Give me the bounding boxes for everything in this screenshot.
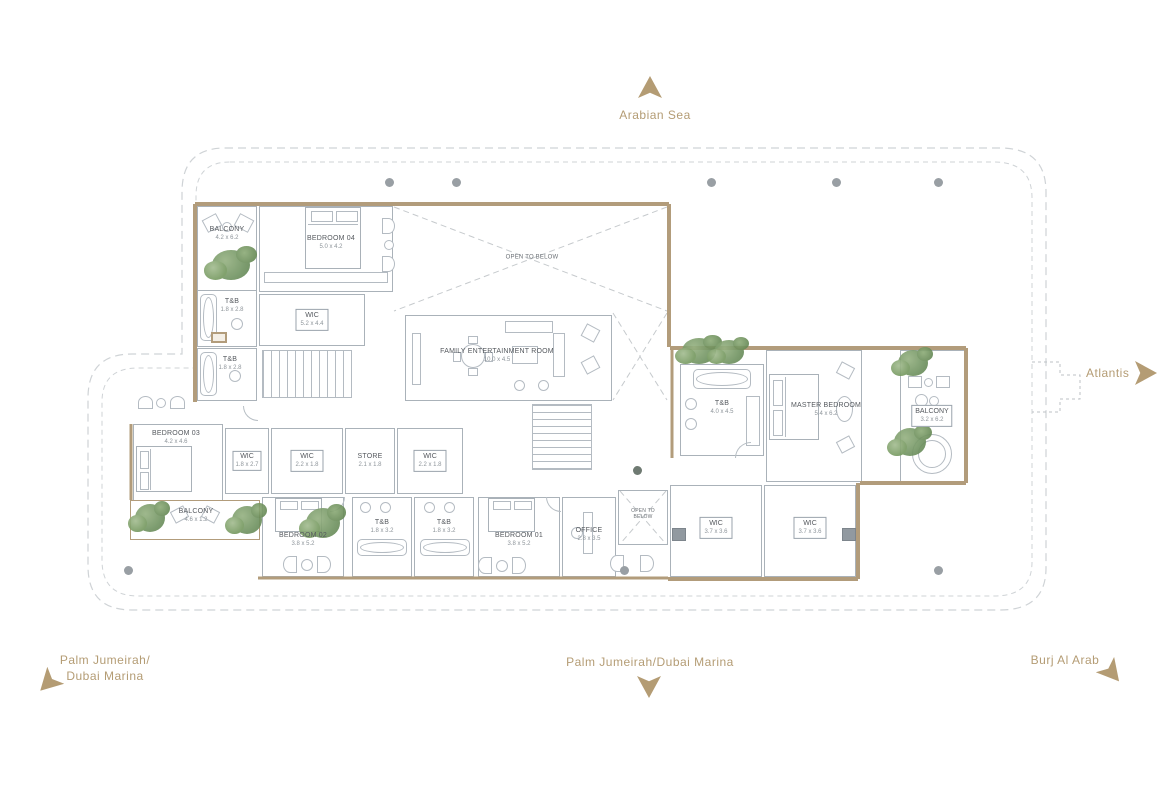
room-label: WIC bbox=[709, 520, 723, 527]
room-label: BALCONY bbox=[210, 226, 245, 233]
side-table-icon bbox=[924, 378, 933, 387]
room-label-family-entertainment: FAMILY ENTERTAINMENT ROOM 10.0 x 4.5 bbox=[440, 348, 554, 364]
room-dims: 3.7 x 3.6 bbox=[704, 529, 727, 537]
compass-label-north: Arabian Sea bbox=[610, 108, 700, 122]
room-label-tb-bedroom-01: T&B 1.8 x 3.2 bbox=[432, 519, 455, 535]
dining-chair-icon bbox=[468, 368, 478, 376]
compass-label-southwest: Palm Jumeirah/ Dubai Marina bbox=[40, 653, 170, 684]
dining-chair-icon bbox=[468, 336, 478, 344]
room-label-wic-bedroom-01: WIC 2.2 x 1.8 bbox=[413, 450, 446, 472]
stool-icon bbox=[514, 380, 525, 391]
vanity-icon bbox=[746, 396, 760, 446]
room-dims: 3.7 x 3.6 bbox=[798, 529, 821, 537]
room-label-master-tb: T&B 4.0 x 4.5 bbox=[710, 400, 733, 416]
bed-icon bbox=[488, 498, 535, 532]
room-dims: 3.8 x 5.2 bbox=[279, 541, 327, 549]
east-arrow-icon bbox=[1135, 361, 1157, 385]
toilet-icon bbox=[685, 398, 697, 410]
room-label: BEDROOM 01 bbox=[495, 532, 543, 539]
column-dot bbox=[633, 466, 642, 475]
room-dims: 1.8 x 2.7 bbox=[235, 462, 258, 470]
sofa-icon bbox=[553, 333, 565, 377]
room-label-balcony-right: BALCONY 3.2 x 6.2 bbox=[911, 405, 952, 427]
room-label-wic-master-right: WIC 3.7 x 3.6 bbox=[793, 517, 826, 539]
room-label-wic-bedroom-03: WIC 1.8 x 2.7 bbox=[232, 451, 261, 471]
room-label-wic-master-left: WIC 3.7 x 3.6 bbox=[699, 517, 732, 539]
plant-icon bbox=[894, 428, 926, 456]
room-dims: 3.2 x 6.2 bbox=[915, 417, 948, 425]
room-label-bedroom-02: BEDROOM 02 3.8 x 5.2 bbox=[279, 532, 327, 548]
room-label: BEDROOM 03 bbox=[152, 430, 200, 437]
chair-icon bbox=[640, 555, 654, 572]
room-label: WIC bbox=[240, 453, 254, 460]
plant-icon bbox=[135, 504, 165, 532]
compass-label-east: Atlantis bbox=[1086, 366, 1129, 380]
room-dims: 2.2 x 1.8 bbox=[295, 462, 318, 470]
room-label: OPEN TO BELOW bbox=[631, 508, 655, 520]
room-label: WIC bbox=[423, 453, 437, 460]
room-dims: 10.0 x 4.5 bbox=[440, 357, 554, 365]
room-label: BEDROOM 04 bbox=[307, 235, 355, 242]
room-label-office: OFFICE 2.8 x 3.5 bbox=[576, 527, 603, 543]
plant-icon bbox=[714, 340, 744, 364]
bathtub-icon bbox=[420, 539, 470, 556]
room-dims: 4.2 x 4.6 bbox=[152, 439, 200, 447]
room-dims: 5.4 x 6.2 bbox=[791, 411, 861, 419]
room-label: STORE bbox=[358, 453, 383, 460]
sink-icon bbox=[444, 502, 455, 513]
chair-icon bbox=[138, 396, 153, 409]
column-dot bbox=[832, 178, 841, 187]
compass-label-southeast: Burj Al Arab bbox=[1020, 653, 1110, 667]
door-threshold-marker bbox=[211, 332, 227, 343]
room-label-tb-lower: T&B 1.8 x 2.8 bbox=[218, 356, 241, 372]
room-label: OPEN TO BELOW bbox=[506, 254, 559, 260]
side-table-icon bbox=[156, 398, 166, 408]
room-label-wic-bedroom-04: WIC 5.2 x 4.4 bbox=[295, 309, 328, 331]
dresser-icon bbox=[264, 272, 388, 283]
room-label: T&B bbox=[437, 519, 451, 526]
room-label: BEDROOM 02 bbox=[279, 532, 327, 539]
chair-icon bbox=[512, 557, 526, 574]
room-label-open-to-below-small: OPEN TO BELOW bbox=[625, 508, 661, 521]
room-label: FAMILY ENTERTAINMENT ROOM bbox=[440, 348, 554, 355]
room-dims: 2.1 x 1.8 bbox=[358, 462, 383, 470]
bathtub-icon bbox=[200, 352, 217, 396]
room-dims: 5.2 x 4.4 bbox=[300, 321, 323, 329]
room-label-store: STORE 2.1 x 1.8 bbox=[358, 453, 383, 469]
room-label-tb-upper: T&B 1.8 x 2.8 bbox=[220, 298, 243, 314]
room-dims: 4.6 x 1.2 bbox=[179, 517, 214, 525]
column-dot bbox=[124, 566, 133, 575]
room-dims: 1.8 x 2.8 bbox=[220, 307, 243, 315]
staircase-upper-left bbox=[262, 350, 352, 398]
north-arrow-icon bbox=[638, 76, 662, 98]
room-label-wic-middle: WIC 2.2 x 1.8 bbox=[290, 450, 323, 472]
chair-icon bbox=[170, 396, 185, 409]
room-label: MASTER BEDROOM bbox=[791, 402, 861, 409]
chair-icon bbox=[478, 557, 492, 574]
chair-icon bbox=[283, 556, 297, 573]
compass-label-line: Palm Jumeirah/ bbox=[40, 653, 170, 669]
room-dims: 1.8 x 3.2 bbox=[370, 528, 393, 536]
chair-icon bbox=[382, 218, 395, 234]
room-label: T&B bbox=[715, 400, 729, 407]
room-label: BALCONY bbox=[915, 408, 948, 415]
room-label: WIC bbox=[803, 520, 817, 527]
room-label-balcony-bottom-left: BALCONY 4.6 x 1.2 bbox=[179, 508, 214, 524]
room-label: WIC bbox=[300, 453, 314, 460]
toilet-icon bbox=[231, 318, 243, 330]
toilet-icon bbox=[360, 502, 371, 513]
room-dims: 4.2 x 6.2 bbox=[210, 235, 245, 243]
ac-unit-icon bbox=[842, 528, 856, 541]
compass-label-line: Dubai Marina bbox=[40, 669, 170, 685]
room-label: T&B bbox=[225, 298, 239, 305]
ac-unit-icon bbox=[672, 528, 686, 541]
plant-icon bbox=[212, 250, 250, 280]
column-dot bbox=[620, 566, 629, 575]
bidet-icon bbox=[685, 418, 697, 430]
plant-icon bbox=[232, 506, 262, 534]
column-dot bbox=[385, 178, 394, 187]
room-dims: 1.8 x 2.8 bbox=[218, 365, 241, 373]
room-label: WIC bbox=[305, 312, 319, 319]
bathtub-icon bbox=[357, 539, 407, 556]
side-table-icon bbox=[384, 240, 394, 250]
room-label: T&B bbox=[375, 519, 389, 526]
room-label-open-to-below-main: OPEN TO BELOW bbox=[506, 254, 559, 262]
bathtub-icon bbox=[693, 369, 751, 389]
room-label-master-bedroom: MASTER BEDROOM 5.4 x 6.2 bbox=[791, 402, 861, 418]
room-label-bedroom-03: BEDROOM 03 4.2 x 4.6 bbox=[152, 430, 200, 446]
sink-icon bbox=[380, 502, 391, 513]
chair-icon bbox=[908, 376, 922, 388]
room-dims: 1.8 x 3.2 bbox=[432, 528, 455, 536]
column-dot bbox=[934, 566, 943, 575]
room-label-balcony-top-left: BALCONY 4.2 x 6.2 bbox=[210, 226, 245, 242]
bed-icon bbox=[136, 446, 192, 492]
chair-icon bbox=[936, 376, 950, 388]
staircase-central bbox=[532, 404, 592, 470]
floor-plan: BALCONY 4.2 x 6.2 BEDROOM 04 5.0 x 4.2 T… bbox=[0, 0, 1170, 785]
toilet-icon bbox=[424, 502, 435, 513]
room-dims: 2.8 x 3.5 bbox=[576, 536, 603, 544]
room-label-tb-bedroom-02: T&B 1.8 x 3.2 bbox=[370, 519, 393, 535]
room-label-bedroom-04: BEDROOM 04 5.0 x 4.2 bbox=[307, 235, 355, 251]
room-dims: 2.2 x 1.8 bbox=[418, 462, 441, 470]
side-table-icon bbox=[496, 560, 508, 572]
south-arrow-icon bbox=[637, 676, 661, 698]
tv-console-icon bbox=[412, 333, 421, 385]
door-arc bbox=[243, 406, 258, 421]
chair-icon bbox=[317, 556, 331, 573]
side-table-icon bbox=[301, 559, 313, 571]
room-dims: 5.0 x 4.2 bbox=[307, 244, 355, 252]
column-dot bbox=[452, 178, 461, 187]
room-label-bedroom-01: BEDROOM 01 3.8 x 5.2 bbox=[495, 532, 543, 548]
sofa-icon bbox=[505, 321, 553, 333]
stool-icon bbox=[538, 380, 549, 391]
room-label: BALCONY bbox=[179, 508, 214, 515]
chair-icon bbox=[382, 256, 395, 272]
room-label: OFFICE bbox=[576, 527, 603, 534]
room-dims: 3.8 x 5.2 bbox=[495, 541, 543, 549]
compass-label-south: Palm Jumeirah/Dubai Marina bbox=[560, 655, 740, 669]
column-dot bbox=[934, 178, 943, 187]
column-dot bbox=[707, 178, 716, 187]
room-dims: 4.0 x 4.5 bbox=[710, 409, 733, 417]
plant-icon bbox=[898, 350, 928, 376]
room-label: T&B bbox=[223, 356, 237, 363]
